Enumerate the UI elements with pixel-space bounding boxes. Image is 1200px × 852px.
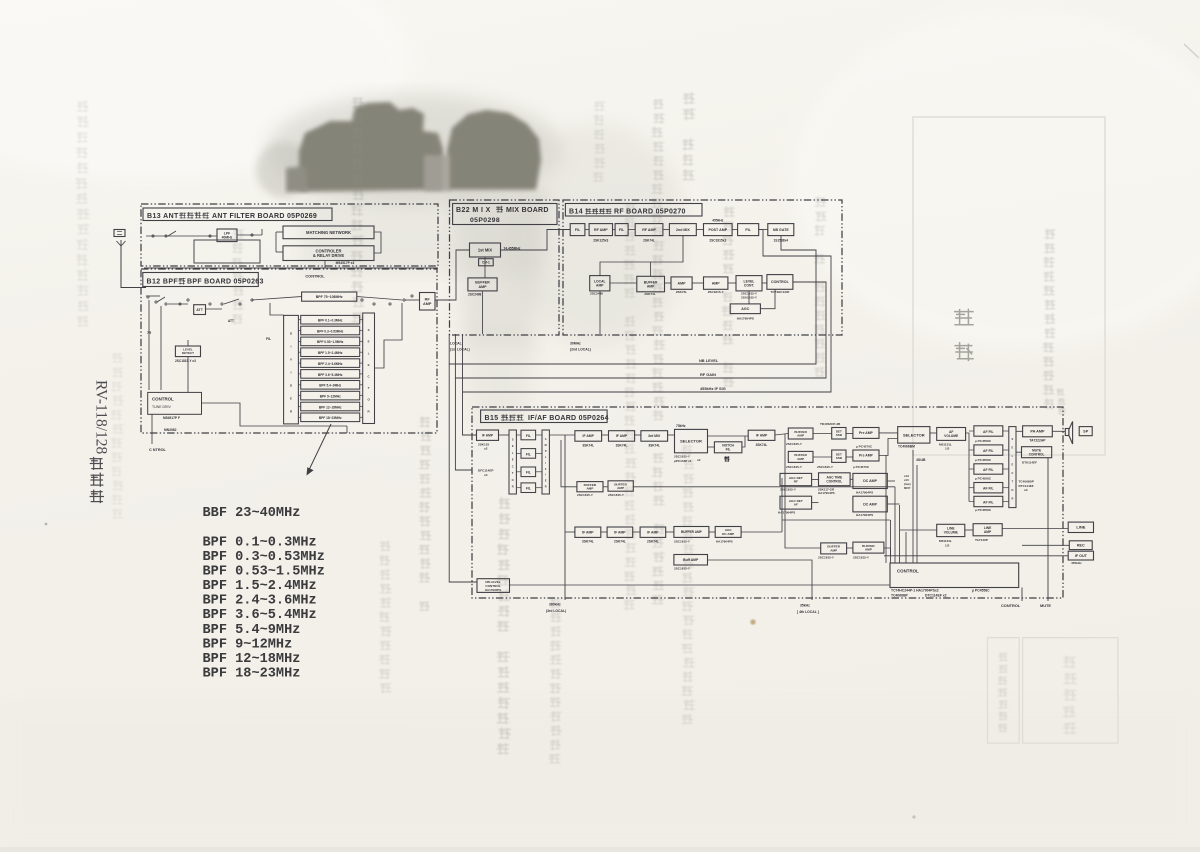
svg-text:Buff AMP: Buff AMP [683,558,699,562]
svg-text:2SA1015-Y: 2SA1015-Y [741,295,758,299]
svg-text:HA17904PS: HA17904PS [737,317,754,321]
svg-text:(1st LOCAL): (1st LOCAL) [450,348,470,352]
svg-text:VOLUME: VOLUME [944,434,959,438]
svg-text:ATT: ATT [228,319,234,323]
svg-text:E: E [1012,462,1014,466]
svg-text:HA17904PS: HA17904PS [778,511,795,515]
svg-text:& RELAY DRIVE: & RELAY DRIVE [313,253,344,258]
svg-text:BUFFER AMP: BUFFER AMP [681,530,703,534]
svg-text:AMP: AMP [586,487,593,491]
svg-text:FIL: FIL [726,447,731,451]
svg-text:POST AMP: POST AMP [708,228,727,232]
svg-text:3SK74L: 3SK74L [582,540,594,544]
svg-text:E: E [368,340,370,344]
svg-text:CM-1: CM-1 [482,260,490,264]
svg-text:O: O [512,478,514,482]
svg-text:MN3082: MN3082 [164,428,177,432]
svg-text:DC AMP: DC AMP [863,502,877,506]
svg-text:S: S [1012,437,1014,441]
svg-text:RF AMP: RF AMP [594,228,608,232]
svg-text:B13 ANT: B13 ANT [147,213,179,220]
svg-text:3SK74L: 3SK74L [756,443,768,447]
svg-text:2SK74L: 2SK74L [643,239,655,243]
svg-text:CONTROL: CONTROL [305,274,325,279]
svg-text:BPF 12~18MHz: BPF 12~18MHz [203,652,301,667]
svg-text:2SC1815x2: 2SC1815x2 [709,239,726,243]
svg-text:BPF 9~12MHz: BPF 9~12MHz [320,394,341,398]
svg-text:µ PC4570C: µ PC4570C [856,444,873,448]
svg-text:SELECTOR: SELECTOR [680,439,702,444]
svg-text:IF AMP: IF AMP [614,530,626,534]
svg-text:CONT.: CONT. [744,284,755,288]
svg-text:M: M [545,444,547,447]
svg-text:AMP: AMP [797,434,804,438]
svg-text:2SC2498: 2SC2498 [590,292,603,296]
svg-text:E: E [368,363,370,367]
svg-text:RF BOARD 05P0270: RF BOARD 05P0270 [614,208,686,215]
svg-text:IF AMP: IF AMP [616,434,628,438]
svg-text:µ PC4570C: µ PC4570C [853,465,870,469]
svg-text:M54517P F: M54517P F [163,416,180,420]
svg-text:3SK74L: 3SK74L [648,444,660,448]
svg-text:2SC1815-Y: 2SC1815-Y [577,493,594,497]
svg-text:455kHz IF SIG: 455kHz IF SIG [700,386,726,391]
svg-text:BPF 18~23MHz: BPF 18~23MHz [203,667,301,682]
svg-text:3SK74L: 3SK74L [582,444,594,448]
svg-text:REC: REC [1077,544,1085,548]
svg-text:TC4066BM: TC4066BM [898,445,915,449]
svg-text:A: A [545,438,547,441]
svg-text:µ PC4558C: µ PC4558C [975,439,992,443]
svg-text:AGC: AGC [741,307,749,311]
svg-text:CONTROL: CONTROL [1001,603,1021,608]
svg-text:NB LEVEL: NB LEVEL [699,358,719,363]
svg-text:TA7222AP: TA7222AP [1029,438,1046,442]
svg-text:BPF 12~18MHz: BPF 12~18MHz [319,405,342,409]
svg-text:SELECTOR: SELECTOR [903,432,925,437]
svg-text:(3rd LOCAL): (3rd LOCAL) [546,609,566,613]
svg-text:RF AMP: RF AMP [642,228,656,232]
svg-text:MIX BOARD: MIX BOARD [506,207,549,214]
svg-text:FIL: FIL [526,487,531,491]
svg-text:E: E [290,397,292,401]
svg-text:2SK125x3: 2SK125x3 [593,239,608,243]
svg-text:T: T [368,386,370,390]
svg-text:2SK74L: 2SK74L [647,540,659,544]
svg-text:HA17904PS: HA17904PS [716,540,733,544]
svg-text:E: E [512,458,514,462]
svg-text:AMP: AMP [678,281,687,285]
svg-text:C: C [1011,471,1013,475]
svg-text:7R: 7R [147,331,152,335]
svg-text:x2: x2 [697,458,701,462]
svg-text:AMP: AMP [797,457,804,461]
svg-text:2SC2498: 2SC2498 [468,293,482,297]
svg-text:2SC1815-Y: 2SC1815-Y [608,493,625,497]
svg-text:NB GATE: NB GATE [773,228,790,232]
svg-text:BPF 0.3~0.53MHz: BPF 0.3~0.53MHz [203,550,325,565]
svg-text:BPF 5.4~9MHz: BPF 5.4~9MHz [319,384,341,388]
svg-text:BPF 1.5~2.4MHz: BPF 1.5~2.4MHz [318,351,343,355]
svg-text:HA17904PS: HA17904PS [485,588,501,592]
svg-text:2SC1815-Y: 2SC1815-Y [674,567,691,571]
svg-text:RV-118/128: RV-118/128 [93,380,110,455]
svg-text:75kHz: 75kHz [676,424,686,428]
svg-text:AMP: AMP [647,284,655,288]
svg-text:3rd MIX: 3rd MIX [648,434,661,438]
svg-text:FIL: FIL [526,471,531,475]
svg-text:µPC144P x1: µPC144P x1 [674,459,692,463]
svg-text:2SC1815-Y: 2SC1815-Y [786,465,803,469]
svg-text:2SC1815-Y: 2SC1815-Y [708,290,725,294]
svg-text:IF/AF BOARD 05P0264: IF/AF BOARD 05P0264 [528,415,609,422]
svg-text:HA17904PS: HA17904PS [818,491,835,495]
svg-text:µ PC4558C: µ PC4558C [972,588,990,592]
svg-text:BPF 3.6~5.4MHz: BPF 3.6~5.4MHz [203,608,317,623]
svg-text:FIL: FIL [619,228,625,232]
svg-text:AMP: AMP [712,281,721,285]
svg-text:AMP: AMP [617,486,624,490]
svg-text:AMP: AMP [423,302,432,306]
svg-text:IF OUT: IF OUT [1075,554,1088,558]
svg-text:AF FIL: AF FIL [983,430,994,434]
svg-text:LINE: LINE [1076,525,1085,530]
svg-text:35kHz: 35kHz [800,604,810,608]
svg-text:x4: x4 [484,473,488,477]
svg-text:B12 BPF: B12 BPF [147,278,179,285]
svg-text:R: R [1011,496,1013,500]
svg-text:TA7140P: TA7140P [975,538,988,542]
svg-text:CONTROL: CONTROL [771,280,790,284]
svg-text:800Y: 800Y [904,486,911,490]
svg-text:ANT FILTER BOARD 05P0269: ANT FILTER BOARD 05P0269 [212,213,317,220]
svg-text:BPF 0.53~1.5MHz: BPF 0.53~1.5MHz [203,565,325,580]
svg-text:40MHz: 40MHz [222,236,233,240]
svg-text:FIL: FIL [266,337,271,341]
svg-text:SSB: SSB [836,456,843,460]
svg-text:2SC1815-Y: 2SC1815-Y [786,442,803,446]
svg-text:AF FIL: AF FIL [983,468,994,472]
svg-text:2SK74L: 2SK74L [644,292,655,296]
svg-text:IF AMP: IF AMP [756,434,768,438]
svg-text:MUTE: MUTE [1040,603,1051,608]
svg-text:R: R [545,486,547,489]
svg-text:VOLUME: VOLUME [944,531,959,535]
svg-text:TC74HC123F: TC74HC123F [770,290,789,294]
svg-text:(2nd LOCAL): (2nd LOCAL) [570,348,591,352]
svg-text:2SC1815-Y: 2SC1815-Y [674,454,691,458]
svg-text:AMP: AMP [984,530,992,534]
svg-text:1/2: 1/2 [945,543,950,547]
svg-text:µ PC4558C: µ PC4558C [975,508,992,512]
svg-text:B14: B14 [569,208,583,215]
svg-text:AMP: AMP [479,285,488,289]
svg-text:IF AMP: IF AMP [482,433,494,437]
svg-text:455kHz: 455kHz [712,218,723,222]
svg-text:B22 M I X: B22 M I X [456,207,491,214]
svg-text:B15: B15 [485,415,499,422]
svg-text:Pre AMP: Pre AMP [859,431,874,435]
svg-text:µ PC4558C: µ PC4558C [975,458,992,462]
svg-text:D: D [290,332,292,336]
svg-text:V: V [290,358,292,362]
svg-text:2SC1815-Y: 2SC1815-Y [817,465,834,469]
svg-text:BPF 0.53~1.5MHz: BPF 0.53~1.5MHz [317,340,344,344]
svg-text:CONTROL: CONTROL [826,479,842,483]
svg-text:CONTROL: CONTROL [897,569,919,574]
svg-text:BPF 0.1~0.3MHz: BPF 0.1~0.3MHz [203,536,317,551]
svg-text:BBF 23~40MHz: BBF 23~40MHz [203,506,301,521]
svg-text:30MHz: 30MHz [570,342,581,346]
svg-text:D: D [290,384,292,388]
svg-text:BPF BOARD 05P0263: BPF BOARD 05P0263 [187,278,264,285]
svg-text:1st MIX: 1st MIX [478,248,493,253]
svg-text:CONTROL: CONTROL [152,397,174,402]
svg-text:R: R [512,485,514,489]
svg-text:SP: SP [1083,430,1089,434]
svg-text:ATT: ATT [196,308,204,312]
svg-text:TC74HC244P-1 HA17904PSx2: TC74HC244P-1 HA17904PSx2 [891,588,939,592]
svg-text:FIL: FIL [526,452,531,456]
svg-text:S: S [512,438,514,442]
svg-text:IF AMP: IF AMP [647,530,659,534]
svg-text:RF GAIN: RF GAIN [700,372,716,377]
svg-text:TC4066BP: TC4066BP [891,593,909,597]
svg-text:AF FIL: AF FIL [983,449,994,453]
svg-text:TUNE DRIV: TUNE DRIV [152,405,172,409]
svg-text:2SK74L: 2SK74L [676,290,687,294]
svg-text:BPF 2.4~3.6MHz: BPF 2.4~3.6MHz [203,594,317,609]
svg-text:AMP: AMP [865,548,872,552]
svg-text:FIL: FIL [575,228,581,232]
svg-text:BPF 0.3~0.53MHz: BPF 0.3~0.53MHz [317,329,344,333]
svg-text:CONTROL: CONTROL [1029,452,1045,456]
svg-text:BPF 9~12MHz: BPF 9~12MHz [203,637,293,652]
svg-text:AF FIL: AF FIL [983,487,994,491]
svg-text:DC AMP: DC AMP [722,532,734,536]
svg-text:DC AMP: DC AMP [863,479,877,483]
svg-text:SSB: SSB [836,433,843,437]
svg-text:DETECT: DETECT [182,351,194,355]
svg-text:RF: RF [425,297,431,301]
svg-text:BPF 0.1~0.3MHz: BPF 0.1~0.3MHz [318,319,343,323]
svg-text:AF: AF [794,503,798,507]
svg-text:x3: x3 [1024,488,1028,492]
svg-text:4S/4B: 4S/4B [916,458,926,462]
svg-text:380kHz: 380kHz [549,603,561,607]
svg-text:455kHz: 455kHz [1071,561,1082,565]
svg-text:Pre AMP: Pre AMP [859,454,874,458]
svg-text:S: S [368,328,370,332]
svg-text:2SC1815-Y x3: 2SC1815-Y x3 [175,359,196,363]
svg-text:FIL: FIL [526,434,531,438]
svg-text:2SC1815-Y: 2SC1815-Y [853,555,870,559]
svg-text:RF: RF [794,480,798,484]
svg-text:BPF 18~23MHz: BPF 18~23MHz [319,416,342,420]
svg-text:FIL: FIL [745,228,751,232]
svg-text:MATCHING NETWORK: MATCHING NETWORK [306,230,351,235]
svg-text:1/2: 1/2 [945,447,950,451]
svg-text:DTA114EF: DTA114EF [1022,460,1037,464]
svg-text:C NTROL: C NTROL [149,448,167,452]
svg-text:C: C [512,464,514,468]
svg-text:IF AMP: IF AMP [582,530,594,534]
svg-text:DTC114EF x2: DTC114EF x2 [925,593,947,597]
svg-text:05P0298: 05P0298 [470,217,500,224]
svg-text:O: O [1011,488,1013,492]
svg-text:BPF 1.5~2.4MHz: BPF 1.5~2.4MHz [203,579,317,594]
svg-text:BPF 5.4~9MHz: BPF 5.4~9MHz [203,623,301,638]
svg-text:BPF 75~108MHz: BPF 75~108MHz [316,295,343,299]
svg-text:PA AMP: PA AMP [1030,430,1045,434]
svg-text:HA17904PS: HA17904PS [856,490,873,494]
svg-text:2SK74L: 2SK74L [614,540,626,544]
svg-text:AMP: AMP [596,284,604,288]
svg-text:IF AMP: IF AMP [583,434,595,438]
svg-text:2SC1815-Y: 2SC1815-Y [780,487,797,491]
svg-text:E: E [512,444,514,448]
svg-text:BPF 3.6~5.4MHz: BPF 3.6~5.4MHz [318,373,343,377]
svg-text:[ 4th LOCAL ]: [ 4th LOCAL ] [797,610,819,614]
svg-text:µ PC4558C: µ PC4558C [975,477,992,481]
svg-text:BPF 2.4~3.6MHz: BPF 2.4~3.6MHz [318,362,343,366]
svg-text:TD4052CP-3B: TD4052CP-3B [820,422,841,426]
svg-text:3SK74L: 3SK74L [616,444,628,448]
svg-text:M54517P x4: M54517P x4 [336,261,355,265]
svg-text:L: L [368,351,370,355]
svg-text:2SC1815-Y: 2SC1815-Y [674,540,691,544]
svg-text:HA17904PS: HA17904PS [856,513,873,517]
svg-text:E: E [1012,445,1014,449]
svg-text:2SC1815-Y: 2SC1815-Y [818,555,835,559]
svg-text:x2: x2 [484,447,488,451]
svg-text:2nd MIX: 2nd MIX [676,228,690,232]
svg-text:AMP: AMP [830,548,837,552]
svg-text:AF FIL: AF FIL [983,501,994,505]
